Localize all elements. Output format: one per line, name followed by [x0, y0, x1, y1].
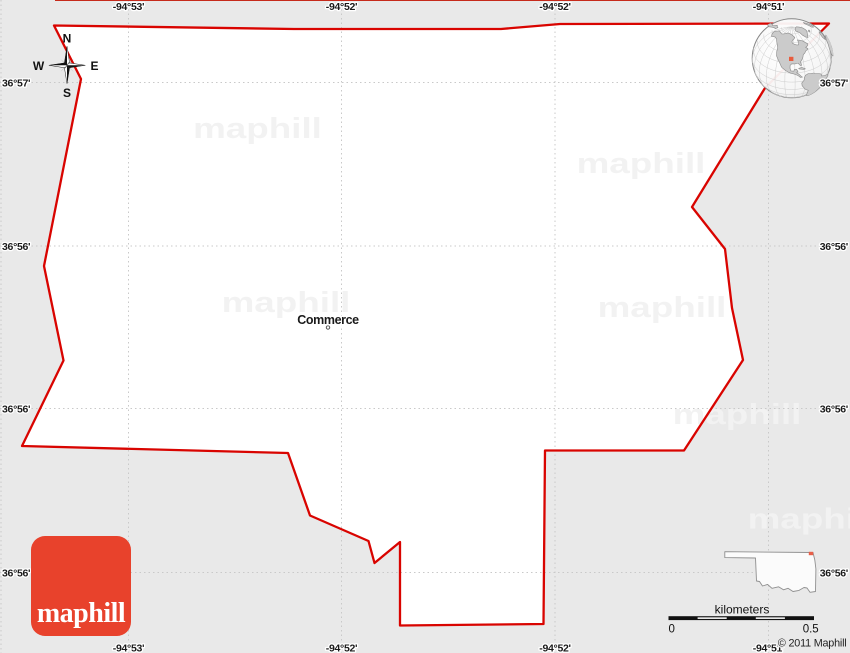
svg-text:36°56': 36°56' — [820, 404, 848, 416]
svg-text:maphill: maphill — [577, 148, 706, 180]
svg-text:-94°53': -94°53' — [113, 1, 144, 13]
svg-text:36°57': 36°57' — [820, 78, 848, 90]
svg-text:maphill: maphill — [748, 503, 850, 535]
svg-text:W: W — [33, 59, 45, 73]
svg-text:36°56': 36°56' — [2, 404, 30, 416]
svg-text:36°57': 36°57' — [2, 78, 30, 90]
svg-text:S: S — [63, 86, 71, 100]
svg-text:maphill: maphill — [598, 292, 727, 324]
svg-text:36°56': 36°56' — [820, 568, 848, 580]
svg-text:-94°52': -94°52' — [326, 643, 357, 653]
svg-text:-94°53': -94°53' — [113, 643, 144, 653]
svg-text:36°56': 36°56' — [820, 241, 848, 253]
svg-text:-94°52': -94°52' — [326, 1, 357, 13]
svg-text:-94°52': -94°52' — [539, 643, 570, 653]
svg-text:N: N — [63, 32, 72, 46]
svg-text:0.5: 0.5 — [803, 624, 819, 636]
svg-text:maphill: maphill — [37, 598, 126, 629]
svg-text:© 2011 Maphill: © 2011 Maphill — [778, 638, 847, 650]
svg-text:-94°51': -94°51' — [753, 1, 784, 13]
svg-text:maphill: maphill — [193, 113, 322, 145]
svg-text:maphill: maphill — [673, 399, 802, 431]
svg-text:36°56': 36°56' — [2, 568, 30, 580]
svg-text:Commerce: Commerce — [297, 313, 359, 327]
svg-text:-94°52': -94°52' — [539, 1, 570, 13]
svg-text:0: 0 — [669, 624, 675, 636]
svg-text:E: E — [90, 59, 98, 73]
svg-text:kilometers: kilometers — [715, 603, 770, 617]
svg-text:36°56': 36°56' — [2, 241, 30, 253]
